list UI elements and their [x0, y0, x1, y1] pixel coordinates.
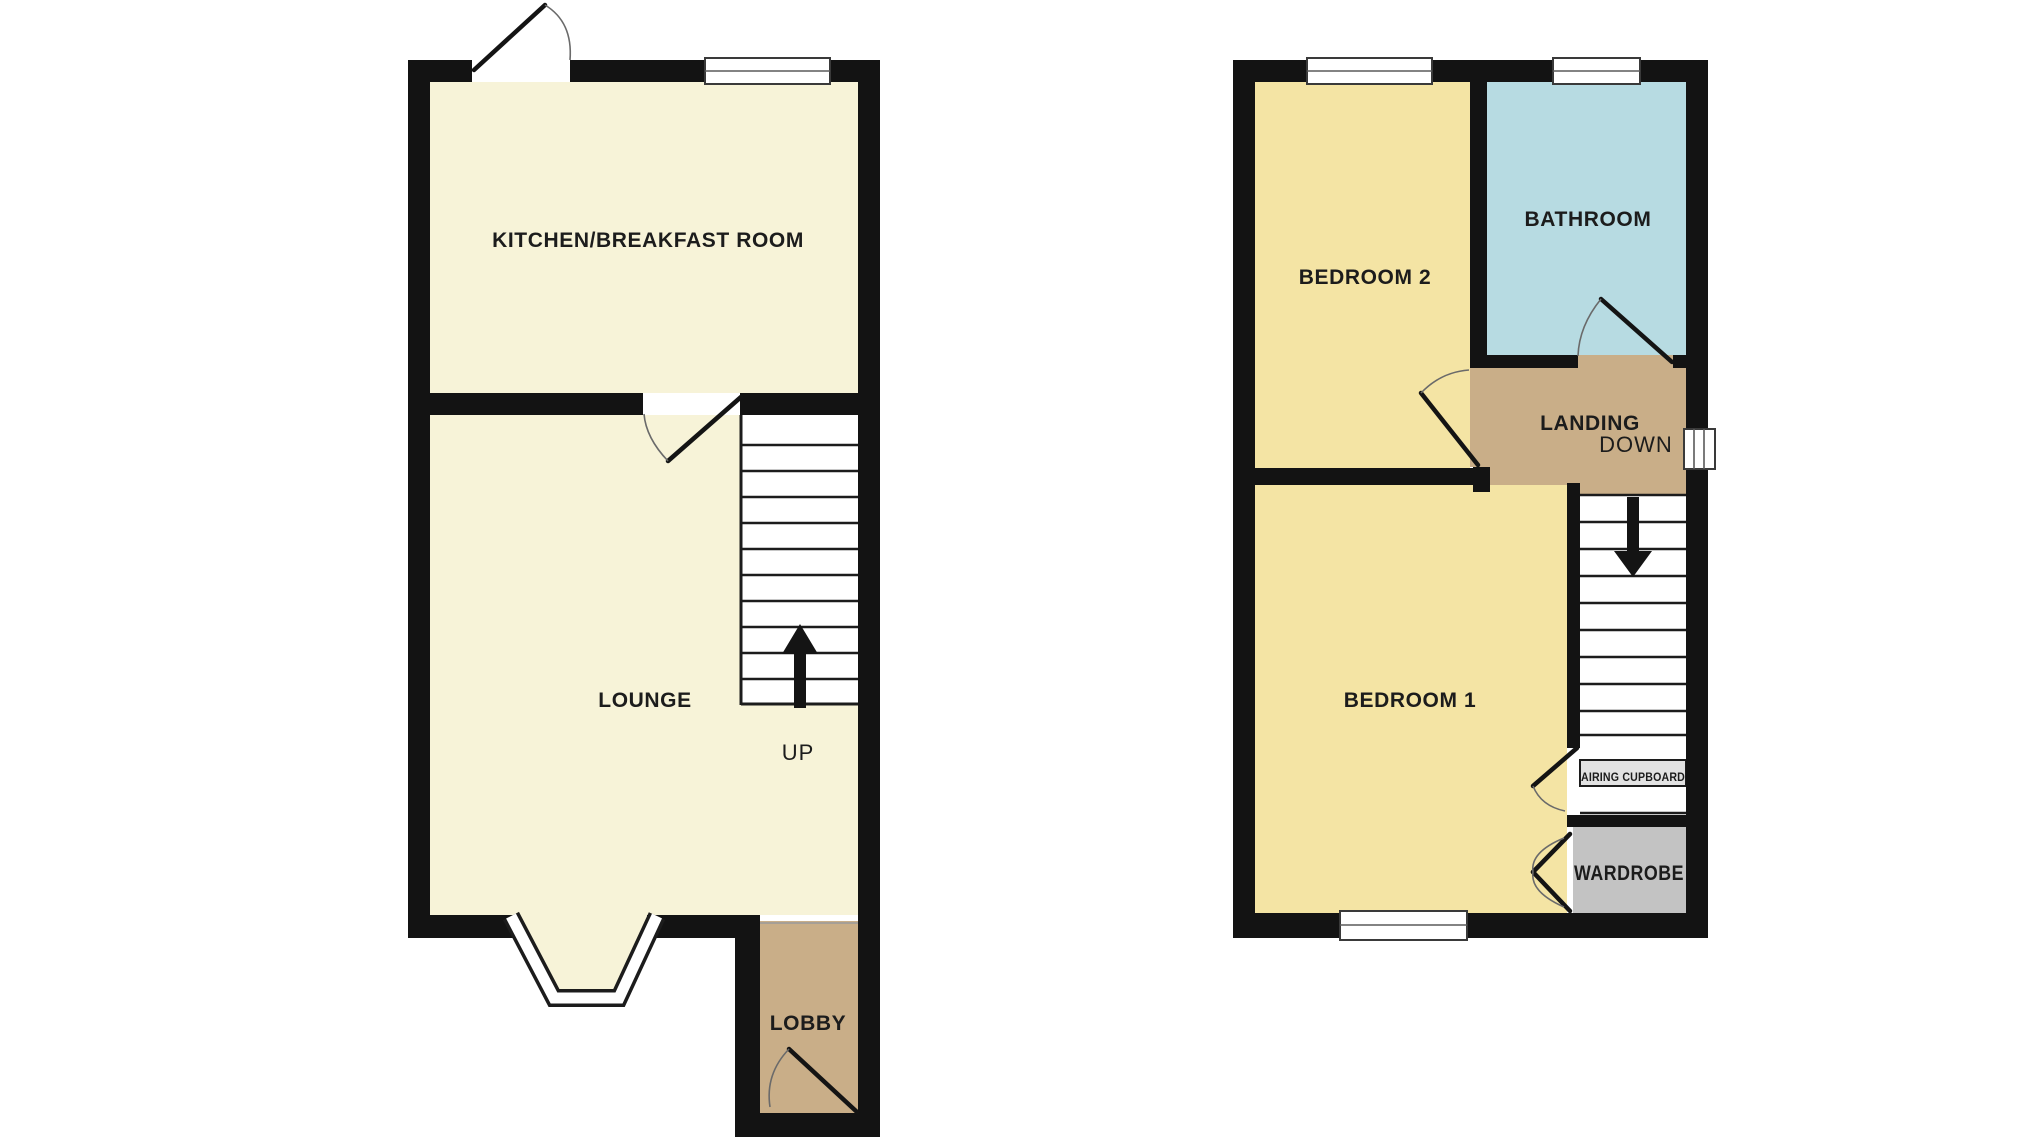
wall-segment [858, 60, 880, 1137]
wall-segment [1470, 82, 1487, 368]
wall-segment [1233, 468, 1490, 485]
staircase-down: AIRING CUPBOARD [1580, 495, 1686, 815]
floorplan-drawing: KITCHEN/BREAKFAST ROOM LOUNGE UP LOBBY [0, 0, 2025, 1139]
wall-segment [1673, 355, 1686, 368]
bedroom1-label: BEDROOM 1 [1344, 689, 1477, 712]
airing-cupboard-label: AIRING CUPBOARD [1581, 772, 1685, 784]
stairs-down-label: DOWN [1599, 432, 1673, 457]
wall-segment [1567, 483, 1580, 748]
stairs-up-label: UP [782, 740, 815, 765]
first-floor-plan: AIRING CUPBOARD [1233, 58, 1715, 940]
wall-segment [1233, 913, 1340, 938]
wall-segment [735, 915, 760, 1137]
wall-segment [735, 1113, 880, 1137]
bathroom-label: BATHROOM [1525, 208, 1652, 231]
wall-segment [1233, 60, 1307, 82]
airing-cupboard: AIRING CUPBOARD [1580, 760, 1686, 786]
lobby-label: LOBBY [770, 1012, 847, 1035]
wall-segment [1233, 60, 1255, 938]
lounge-label: LOUNGE [598, 689, 691, 712]
staircase-up [741, 415, 858, 708]
landing-window [1684, 429, 1715, 469]
wall-segment [430, 393, 643, 415]
wall-segment [1432, 60, 1553, 82]
ground-floor-plan: KITCHEN/BREAKFAST ROOM LOUNGE UP LOBBY [408, 5, 880, 1137]
wall-segment [740, 393, 858, 415]
front-door [474, 5, 570, 70]
wall-segment [408, 60, 472, 82]
bedroom2-label: BEDROOM 2 [1299, 266, 1432, 289]
wall-segment [1470, 355, 1578, 368]
floorplan-page: KITCHEN/BREAKFAST ROOM LOUNGE UP LOBBY [0, 0, 2025, 1139]
bedroom2-doorway-floor [1470, 368, 1490, 467]
bathroom-doorway-floor [1578, 355, 1673, 368]
wall-segment [570, 60, 705, 82]
wall-segment [1467, 913, 1708, 938]
wall-segment [1686, 60, 1708, 938]
wall-segment [408, 915, 513, 938]
wall-segment [408, 60, 430, 938]
wall-segment [1567, 815, 1687, 827]
wardrobe-label: WARDROBE [1574, 862, 1684, 885]
kitchen-label: KITCHEN/BREAKFAST ROOM [492, 229, 804, 252]
